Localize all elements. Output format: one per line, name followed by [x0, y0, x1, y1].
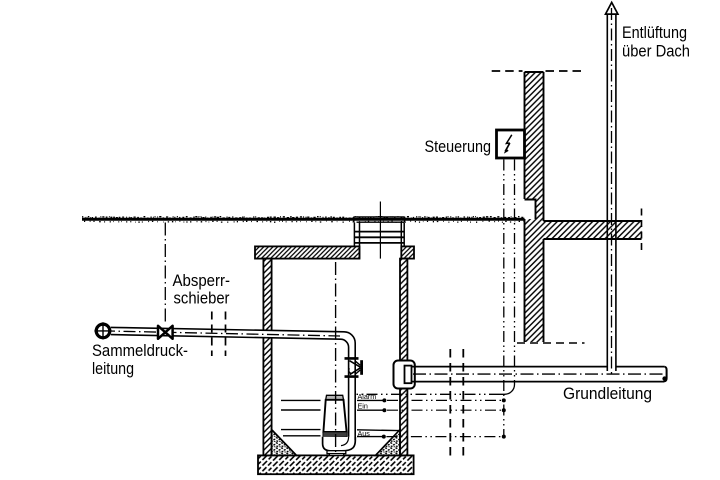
- svg-text:über Dach: über Dach: [622, 42, 690, 61]
- svg-text:Ein: Ein: [358, 401, 368, 410]
- svg-text:Steuerung: Steuerung: [425, 137, 492, 156]
- svg-text:Sammeldruck-: Sammeldruck-: [92, 341, 188, 360]
- svg-text:Alarm: Alarm: [358, 392, 377, 401]
- svg-text:Aus: Aus: [358, 429, 371, 438]
- svg-text:schieber: schieber: [174, 289, 230, 308]
- svg-text:Grundleitung: Grundleitung: [563, 384, 652, 403]
- svg-text:Entlüftung: Entlüftung: [622, 23, 687, 42]
- svg-text:leitung: leitung: [92, 359, 134, 378]
- svg-text:Absperr-: Absperr-: [173, 271, 231, 290]
